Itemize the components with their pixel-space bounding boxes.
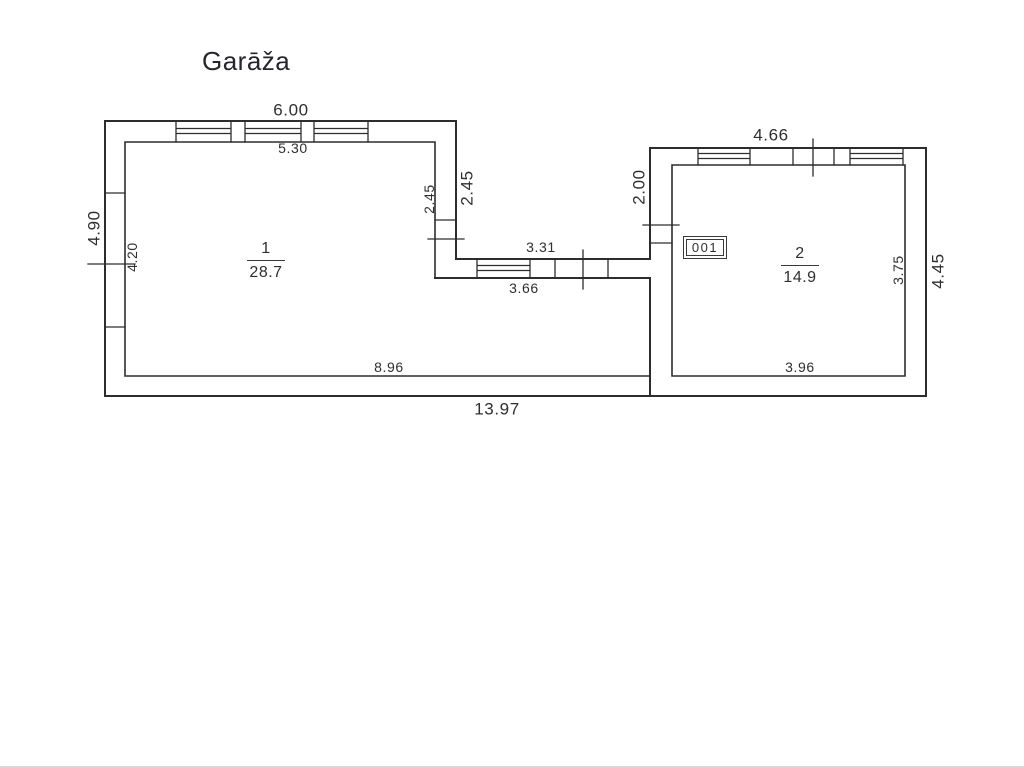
dim-room2-left: 2.00 (631, 169, 648, 205)
dim-notch-inner: 2.45 (422, 184, 436, 214)
dim-mid-bottom: 3.66 (509, 281, 539, 295)
dim-room2-top: 4.66 (753, 127, 789, 144)
dim-room2-right-outer: 4.45 (930, 253, 947, 289)
dim-left-outer: 4.90 (86, 210, 103, 246)
room2-number: 2 (781, 246, 819, 262)
dim-left-inner: 4.20 (125, 242, 139, 272)
room1-area: 28.7 (247, 265, 285, 281)
dim-mid-top: 3.31 (526, 240, 556, 254)
room1-label: 1 28.7 (247, 241, 285, 281)
room2-underline (781, 265, 819, 266)
dim-room1-bottom: 8.96 (374, 360, 404, 374)
middle-wall-window (477, 259, 608, 278)
dim-room2-bottom: 3.96 (785, 360, 815, 374)
room1-windows (176, 121, 368, 142)
room2-label: 2 14.9 (781, 246, 819, 286)
dim-room2-right-inner: 3.75 (891, 255, 905, 285)
room2-area: 14.9 (781, 270, 819, 286)
dim-bottom-outer: 13.97 (474, 401, 520, 418)
dim-notch-outer: 2.45 (459, 170, 476, 206)
unit-number: 001 (692, 240, 718, 255)
floor-plan-page: Garāža 6.00 5.30 4.90 4.20 2.45 2.45 3.3… (0, 0, 1024, 768)
room1-underline (247, 260, 285, 261)
dimension-ticks (88, 139, 813, 289)
unit-number-box: 001 (686, 239, 724, 256)
room1-number: 1 (247, 241, 285, 257)
dim-top-inner: 5.30 (278, 141, 308, 155)
floor-plan-drawing (0, 0, 1024, 768)
dim-top-outer: 6.00 (273, 102, 309, 119)
room2-windows (698, 148, 903, 165)
